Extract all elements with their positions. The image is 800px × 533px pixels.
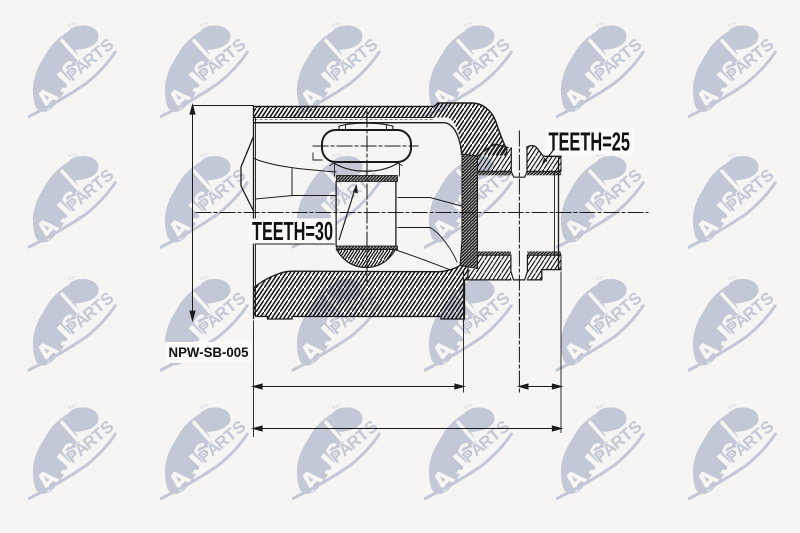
svg-text:TEETH=25: TEETH=25 (549, 129, 631, 157)
svg-text:NPW-SB-005: NPW-SB-005 (169, 345, 249, 360)
svg-text:TEETH=30: TEETH=30 (252, 218, 333, 246)
